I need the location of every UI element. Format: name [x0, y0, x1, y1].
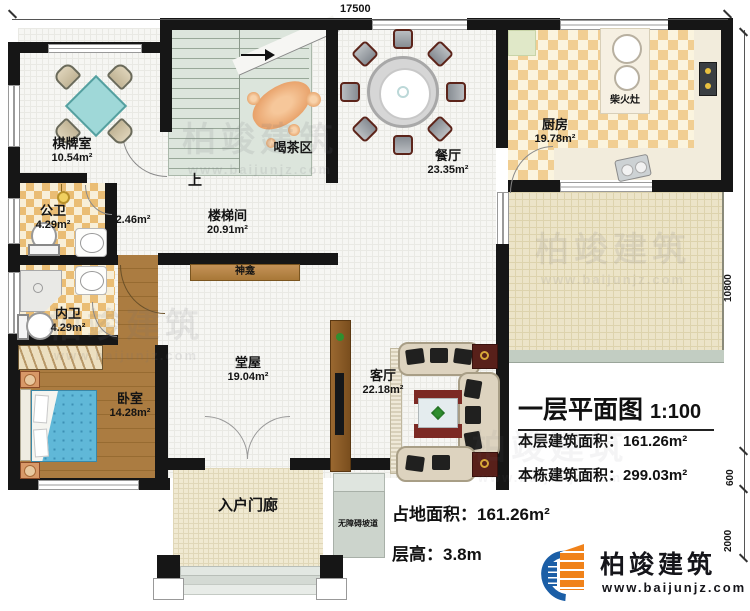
logo-block-icon	[548, 562, 557, 586]
cushion	[464, 379, 483, 400]
plan-scale: 1:100	[650, 401, 701, 423]
cushion	[405, 455, 425, 472]
site-area-label: 占地面积：	[392, 505, 477, 524]
wood-stove-label: 柴火灶	[601, 91, 649, 106]
dimension-right-mid: 600	[725, 456, 736, 486]
chair-icon	[393, 29, 413, 49]
floor-plan-canvas: 柴火灶 神龛	[0, 0, 750, 611]
pillow	[33, 429, 49, 458]
room-area: 19.04m²	[213, 371, 283, 384]
bed-headboard	[20, 389, 31, 461]
floor-area-label: 本层建筑面积：	[518, 433, 623, 450]
room-name: 棋牌室	[32, 137, 112, 152]
room-name: 楼梯间	[190, 209, 265, 224]
room-area: 10.54m²	[32, 152, 112, 165]
room-area: 22.18m²	[348, 384, 418, 397]
dimension-line-top	[12, 19, 728, 20]
tea-stool	[288, 124, 300, 136]
kitchen-cabinet	[508, 30, 536, 56]
sink-bowl	[634, 160, 648, 174]
window	[8, 198, 20, 244]
stair-flight-left	[169, 29, 239, 173]
shower-drain	[33, 283, 43, 293]
wall	[160, 18, 172, 132]
plant-icon	[336, 333, 344, 341]
ring-decor	[480, 459, 489, 468]
gas-stove-icon	[699, 62, 717, 96]
brand-website: www.baijunjz.com	[602, 580, 746, 595]
chair-icon	[393, 135, 413, 155]
window	[8, 85, 20, 147]
column-base	[153, 578, 184, 600]
room-label-dining: 餐厅 23.35m²	[413, 149, 483, 177]
shrine: 神龛	[190, 264, 300, 281]
dimension-right-total: 10800	[723, 242, 734, 302]
room-name: 内卫	[38, 307, 98, 322]
sink-bowl	[620, 163, 634, 177]
ramp-upper	[333, 473, 385, 493]
room-label-living: 客厅 22.18m²	[348, 369, 418, 397]
storey-height-line: 层高：3.8m	[392, 540, 482, 565]
wall	[8, 173, 87, 183]
lazy-susan	[397, 86, 409, 98]
room-area: 4.29m²	[23, 219, 83, 232]
wall	[721, 18, 733, 192]
chair-icon	[340, 82, 360, 102]
room-label-private-wc: 内卫 4.29m²	[38, 307, 98, 335]
plan-title-text: 一层平面图	[518, 396, 643, 424]
storey-height-label: 层高：	[392, 545, 443, 564]
lamp-icon	[24, 465, 36, 477]
cushion	[465, 406, 481, 424]
plan-title: 一层平面图 1:100	[518, 390, 714, 431]
tea-stool	[247, 92, 260, 105]
dimension-line-right	[744, 30, 745, 560]
tv-icon	[335, 373, 344, 435]
side-table	[472, 452, 498, 477]
lamp-icon	[24, 374, 36, 386]
room-area: 14.28m²	[95, 407, 165, 420]
dining-table	[367, 56, 439, 128]
cushion	[430, 348, 448, 363]
nightstand	[20, 371, 40, 388]
site-area-line: 占地面积：161.26m²	[392, 500, 550, 525]
floor-area-line: 本层建筑面积：161.26m²	[518, 430, 687, 451]
brand-logo: 柏竣建筑 www.baijunjz.com	[538, 540, 738, 606]
burner-icon	[705, 68, 711, 74]
stair-arrow-head	[265, 49, 275, 61]
cushion	[405, 348, 425, 365]
room-area: 19.78m²	[520, 133, 590, 146]
pillow	[33, 395, 49, 424]
wall	[652, 180, 733, 192]
window	[38, 480, 139, 490]
cushion	[453, 348, 473, 365]
room-label-chess: 棋牌室 10.54m²	[32, 137, 112, 165]
column-base	[316, 578, 347, 600]
stove-pot-icon	[612, 34, 642, 64]
side-table	[472, 344, 498, 369]
wall	[496, 27, 508, 148]
sink-basin	[80, 271, 104, 291]
dimension-tick	[8, 9, 17, 18]
burner-icon	[705, 83, 711, 89]
dimension-top-value: 17500	[340, 3, 371, 15]
room-area: 20.91m²	[190, 224, 265, 237]
stair-arrow-shaft	[241, 54, 267, 56]
ring-decor	[480, 351, 489, 360]
column	[157, 555, 180, 578]
bed	[31, 390, 97, 462]
stair-divider	[239, 29, 240, 173]
site-area-value: 161.26m²	[477, 505, 550, 524]
window	[372, 20, 469, 30]
room-name: 公卫	[23, 204, 83, 219]
room-label-kitchen: 厨房 19.78m²	[520, 118, 590, 146]
room-name: 客厅	[348, 369, 418, 384]
storey-height-value: 3.8m	[443, 545, 482, 564]
toilet-tank	[28, 244, 60, 256]
sink-icon	[75, 228, 107, 257]
room-area: 23.35m²	[413, 164, 483, 177]
terrace-edge-band	[508, 350, 724, 363]
total-area-value: 299.03m²	[623, 467, 687, 484]
window	[560, 182, 654, 192]
chair-icon	[446, 82, 466, 102]
corridor-area-label: 2.46m²	[98, 214, 168, 227]
room-label-stairwell: 楼梯间 20.91m²	[190, 209, 265, 237]
room-label-bedroom: 卧室 14.28m²	[95, 392, 165, 420]
cushion	[432, 455, 450, 470]
stair-up-label: 上	[175, 172, 215, 188]
tea-stool	[306, 92, 321, 107]
porch-floor	[173, 468, 323, 568]
total-area-label: 本栋建筑面积：	[518, 467, 623, 484]
window	[48, 44, 142, 53]
stove-pot-icon	[614, 65, 640, 91]
wall	[326, 18, 338, 183]
sink-icon	[75, 266, 107, 295]
sofa	[396, 446, 476, 482]
sink-basin	[80, 233, 104, 253]
plant-icon	[431, 406, 445, 420]
brand-name: 柏竣建筑	[600, 545, 716, 581]
room-label-tea: 喝茶区	[258, 141, 328, 156]
nightstand	[20, 462, 40, 479]
room-name: 堂屋	[213, 356, 283, 371]
column	[320, 555, 343, 578]
step	[180, 584, 324, 595]
wall	[160, 458, 205, 470]
room-name: 餐厅	[413, 149, 483, 164]
room-label-public-wc: 公卫 4.29m²	[23, 204, 83, 232]
wardrobe	[18, 345, 103, 370]
room-area: 4.29m²	[38, 322, 98, 335]
room-label-porch: 入户门廊	[198, 497, 298, 514]
ramp-label: 无障碍坡道	[333, 519, 383, 528]
floor-area-value: 161.26m²	[623, 433, 687, 450]
room-name: 卧室	[95, 392, 165, 407]
terrace-floor	[508, 192, 724, 352]
room-label-hall: 堂屋 19.04m²	[213, 356, 283, 384]
wood-stove-counter: 柴火灶	[600, 28, 650, 114]
window	[497, 192, 509, 246]
coffee-table	[418, 398, 458, 428]
total-area-line: 本栋建筑面积：299.03m²	[518, 464, 687, 485]
room-name: 厨房	[520, 118, 590, 133]
